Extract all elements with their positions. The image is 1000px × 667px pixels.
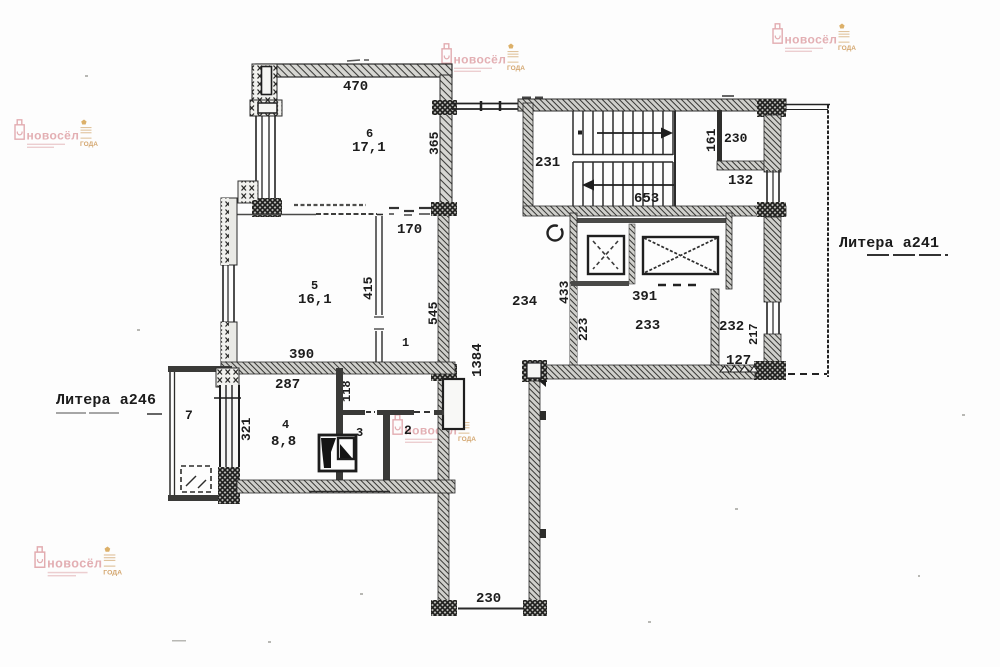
svg-text:170: 170 [397, 222, 422, 238]
svg-text:1384: 1384 [470, 343, 486, 377]
svg-text:Литера а241: Литера а241 [839, 235, 939, 252]
svg-text:653: 653 [634, 191, 659, 207]
svg-text:17,1: 17,1 [352, 140, 386, 156]
svg-text:234: 234 [512, 294, 537, 310]
svg-text:321: 321 [239, 417, 254, 441]
svg-text:6: 6 [366, 127, 373, 141]
svg-text:4: 4 [282, 418, 289, 432]
svg-text:5: 5 [311, 279, 318, 293]
svg-text:433: 433 [557, 280, 572, 304]
svg-text:132: 132 [728, 173, 753, 189]
svg-text:545: 545 [426, 301, 441, 325]
svg-text:Литера а246: Литера а246 [56, 392, 156, 409]
svg-text:233: 233 [635, 318, 660, 334]
svg-text:390: 390 [289, 347, 314, 363]
svg-text:8,8: 8,8 [271, 434, 296, 450]
svg-text:415: 415 [361, 276, 376, 300]
svg-text:230: 230 [476, 591, 501, 607]
svg-text:1: 1 [402, 336, 409, 350]
svg-text:287: 287 [275, 377, 300, 393]
svg-text:230: 230 [724, 131, 748, 146]
svg-text:231: 231 [535, 155, 560, 171]
svg-text:223: 223 [576, 317, 591, 341]
svg-text:16,1: 16,1 [298, 292, 332, 308]
svg-text:470: 470 [343, 79, 368, 95]
svg-text:7: 7 [185, 408, 193, 423]
svg-text:217: 217 [747, 323, 761, 345]
svg-text:232: 232 [719, 319, 744, 335]
svg-text:391: 391 [632, 289, 657, 305]
svg-text:2: 2 [404, 423, 412, 438]
svg-text:365: 365 [427, 131, 442, 155]
svg-text:161: 161 [704, 128, 719, 152]
